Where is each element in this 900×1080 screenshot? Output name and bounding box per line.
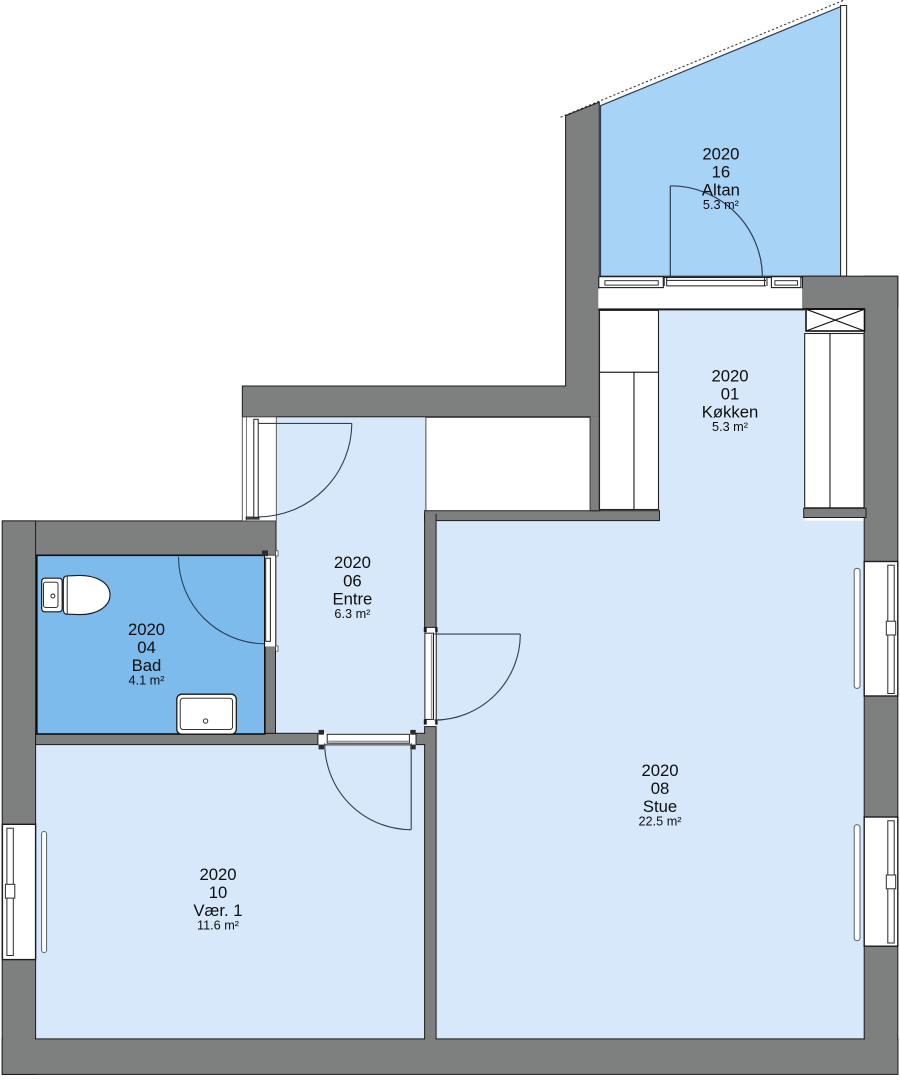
svg-text:Køkken: Køkken	[702, 403, 759, 422]
svg-text:Altan: Altan	[702, 181, 740, 200]
svg-text:2020: 2020	[711, 366, 748, 385]
svg-text:22.5 m²: 22.5 m²	[638, 815, 681, 829]
svg-text:04: 04	[137, 638, 156, 657]
svg-text:2020: 2020	[702, 144, 739, 163]
svg-text:4.1 m²: 4.1 m²	[129, 674, 165, 688]
svg-text:Entre: Entre	[332, 589, 372, 608]
svg-text:2020: 2020	[128, 620, 165, 639]
svg-text:2020: 2020	[199, 865, 236, 884]
svg-text:Vær. 1: Vær. 1	[193, 901, 242, 920]
svg-text:16: 16	[712, 163, 731, 182]
svg-text:06: 06	[343, 571, 362, 590]
svg-text:01: 01	[721, 385, 740, 404]
svg-text:2020: 2020	[334, 553, 371, 572]
svg-text:11.6 m²: 11.6 m²	[197, 919, 239, 933]
svg-text:5.3 m²: 5.3 m²	[712, 420, 748, 434]
svg-text:5.3 m²: 5.3 m²	[703, 198, 739, 212]
svg-text:Bad: Bad	[132, 656, 162, 675]
svg-text:10: 10	[209, 883, 228, 902]
svg-text:08: 08	[651, 779, 670, 798]
svg-text:6.3 m²: 6.3 m²	[334, 607, 370, 621]
svg-text:Stue: Stue	[643, 797, 677, 816]
svg-text:2020: 2020	[641, 761, 678, 780]
